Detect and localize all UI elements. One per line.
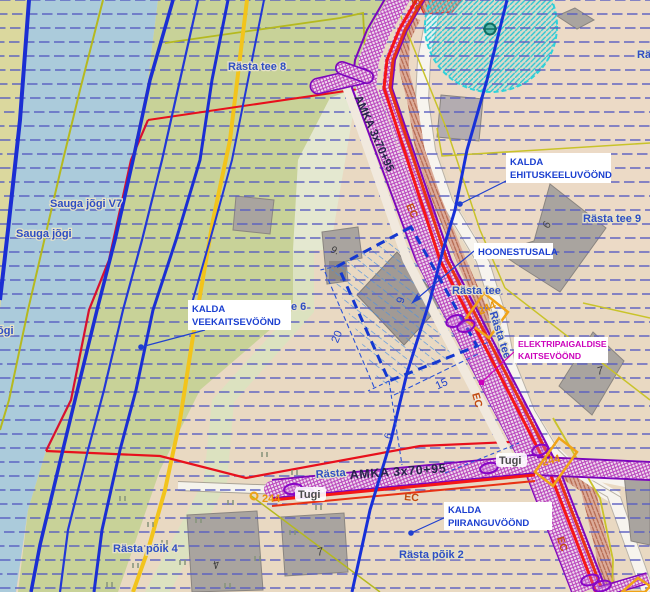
svg-text:HOONESTUSALA: HOONESTUSALA: [478, 247, 558, 258]
svg-text:EC: EC: [404, 491, 420, 504]
svg-text:ELEKTRIPAIGALDISE: ELEKTRIPAIGALDISE: [518, 339, 607, 349]
svg-text:VEEKAITSEVÖÖND: VEEKAITSEVÖÖND: [192, 317, 281, 328]
svg-text:KALDA: KALDA: [448, 505, 481, 516]
svg-text:244: 244: [262, 493, 281, 505]
svg-text:Rästa tee: Rästa tee: [452, 285, 501, 297]
svg-text:Sauga jõgi V7: Sauga jõgi V7: [50, 198, 122, 210]
svg-text:PIIRANGUVÖÖND: PIIRANGUVÖÖND: [448, 518, 529, 529]
svg-text:Rästa tee 8: Rästa tee 8: [228, 61, 286, 73]
svg-text:Rästa: Rästa: [315, 467, 347, 481]
svg-text:Rä: Rä: [637, 49, 650, 61]
svg-text:KAITSEVÖÖND: KAITSEVÖÖND: [518, 351, 581, 361]
svg-text:Tugi: Tugi: [499, 455, 521, 467]
svg-text:KALDA: KALDA: [510, 157, 543, 168]
svg-text:Rästa tee 9: Rästa tee 9: [583, 213, 641, 225]
svg-text:õgi: õgi: [0, 325, 14, 337]
svg-text:e 6: e 6: [291, 301, 306, 313]
svg-text:Rästa põik 4: Rästa põik 4: [113, 543, 179, 555]
svg-text:EHITUSKEELUVÖÖND: EHITUSKEELUVÖÖND: [510, 170, 612, 181]
svg-text:Tugi: Tugi: [298, 489, 320, 501]
svg-text:Sauga jõgi: Sauga jõgi: [16, 228, 72, 240]
svg-text:KALDA: KALDA: [192, 304, 225, 315]
svg-text:Rästa põik 2: Rästa põik 2: [399, 549, 464, 561]
